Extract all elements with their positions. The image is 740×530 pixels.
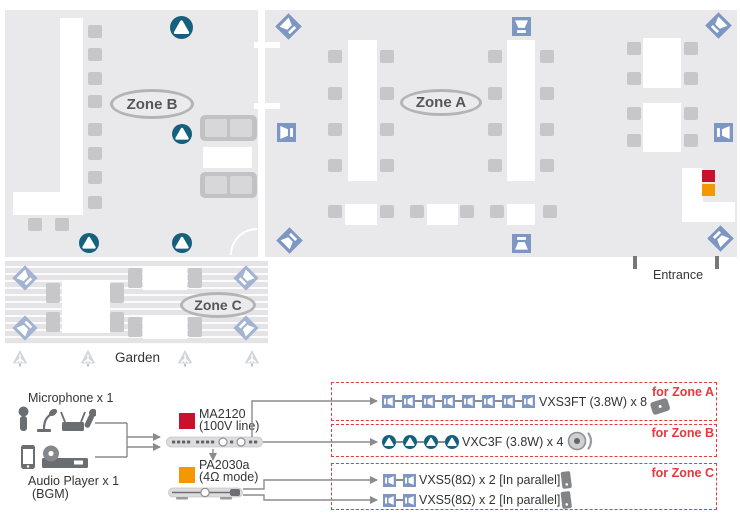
zone-a-speakers-label: VXS3FT (3.8W) x 8 <box>539 395 647 409</box>
wall-speaker-icon <box>277 123 296 142</box>
table <box>203 147 252 168</box>
connector-line <box>435 400 442 402</box>
vxs3ft-speaker-icon <box>422 395 435 408</box>
page: Zone B Zone A Zone C Garden Entrance Mic… <box>0 0 740 530</box>
chair <box>380 159 394 172</box>
chair <box>460 205 474 218</box>
chair <box>188 317 202 337</box>
chair <box>128 317 142 337</box>
connector-line <box>455 400 462 402</box>
table <box>345 204 377 225</box>
corner-speaker-icon <box>707 225 734 252</box>
connector-line <box>415 400 422 402</box>
table <box>643 38 681 88</box>
vxs3ft-speaker-icon <box>502 395 515 408</box>
ceiling-speaker-icon <box>172 233 192 253</box>
chair <box>410 205 424 218</box>
zone-b-label: Zone B <box>110 89 194 119</box>
garden-tree-icon <box>11 349 29 367</box>
for-zone-b-tag: for Zone B <box>638 426 714 440</box>
vxs5-product-image <box>558 490 574 510</box>
chair <box>540 50 554 63</box>
audio-player-sublabel: (BGM) <box>32 487 69 501</box>
vxc3f-speaker-icon <box>403 435 417 449</box>
audio-player-icons <box>20 444 92 470</box>
zone-c-speakers-label-2: VXS5(8Ω) x 2 [In parallel] <box>419 493 560 507</box>
zone-b-label-text: Zone B <box>127 96 178 113</box>
chair <box>46 283 60 303</box>
table <box>507 40 535 181</box>
chair <box>188 268 202 288</box>
chair <box>328 123 342 136</box>
vxs5-speaker-icon <box>403 474 416 487</box>
vxs3ft-speaker-icon <box>522 395 535 408</box>
vxs3ft-speaker-icon <box>402 395 415 408</box>
chair <box>684 107 698 120</box>
garden-tree-icon <box>79 349 97 367</box>
table <box>682 202 735 222</box>
doorway-cap <box>254 103 280 109</box>
entrance-label: Entrance <box>636 268 720 282</box>
chair <box>88 48 102 61</box>
chair <box>328 159 342 172</box>
vxc3f-product-image <box>567 431 594 451</box>
chair <box>540 159 554 172</box>
for-zone-c-tag: for Zone C <box>638 466 714 480</box>
chair <box>28 218 42 231</box>
pa2030a-location-marker <box>702 184 715 196</box>
table <box>427 204 458 225</box>
zone-c-speaker-chain-1 <box>383 473 416 487</box>
garden-label: Garden <box>115 350 160 365</box>
sofa-cushion <box>230 176 252 194</box>
ma2120-amplifier-image <box>166 436 263 448</box>
vxs5-product-image <box>558 470 574 490</box>
table <box>60 18 83 215</box>
vxs3ft-product-image <box>648 396 672 416</box>
zone-c-speaker-chain-2 <box>383 493 416 507</box>
outdoor-speaker-icon <box>12 315 37 340</box>
chair <box>490 205 504 218</box>
audio-player-label: Audio Player x 1 <box>28 474 119 488</box>
chair <box>328 87 342 100</box>
sofa <box>200 115 257 141</box>
pa2030a-mode: (4Ω mode) <box>199 470 258 484</box>
vxc3f-speaker-icon <box>382 435 396 449</box>
chair <box>88 123 102 136</box>
ceiling-speaker-icon <box>172 124 192 144</box>
zone-c-label: Zone C <box>180 292 256 318</box>
wall-speaker-icon <box>512 234 531 253</box>
table <box>507 204 535 225</box>
table <box>348 40 377 181</box>
chair <box>88 95 102 108</box>
chair <box>110 283 124 303</box>
vxs3ft-speaker-icon <box>462 395 475 408</box>
garden-tree-icon <box>176 349 194 367</box>
garden-tree-icon <box>243 349 261 367</box>
chair <box>627 42 641 55</box>
vxc3f-speaker-icon <box>445 435 459 449</box>
outdoor-speaker-icon <box>12 265 37 290</box>
zone-b-speakers-label: VXC3F (3.8W) x 4 <box>462 435 563 449</box>
chair <box>627 72 641 85</box>
table <box>643 103 681 152</box>
sofa-cushion <box>205 119 227 137</box>
vxs3ft-speaker-icon <box>382 395 395 408</box>
chair <box>55 218 69 231</box>
vxs5-speaker-icon <box>383 474 396 487</box>
chair <box>684 72 698 85</box>
corner-speaker-icon <box>275 13 302 40</box>
chair <box>110 312 124 332</box>
connector-line <box>438 441 445 443</box>
chair <box>88 147 102 160</box>
table <box>143 315 187 339</box>
table <box>62 280 110 333</box>
ma2120-color-key <box>179 413 195 429</box>
connector-line <box>396 441 403 443</box>
vxs3ft-speaker-icon <box>442 395 455 408</box>
chair <box>543 205 557 218</box>
chair <box>488 123 502 136</box>
outdoor-speaker-icon <box>233 315 258 340</box>
connector-line <box>515 400 522 402</box>
wall-speaker-icon <box>512 17 531 36</box>
connector-line <box>396 479 403 481</box>
microphone-label: Microphone x 1 <box>28 391 113 405</box>
ceiling-speaker-icon <box>79 233 99 253</box>
outdoor-speaker-icon <box>233 265 258 290</box>
vxc3f-speaker-icon <box>424 435 438 449</box>
sofa-cushion <box>205 176 227 194</box>
chair <box>128 268 142 288</box>
connector-line <box>475 400 482 402</box>
vxs3ft-speaker-icon <box>482 395 495 408</box>
pa2030a-amplifier-image <box>168 486 243 500</box>
doorway-cap <box>254 42 280 48</box>
chair <box>46 312 60 332</box>
chair <box>488 87 502 100</box>
chair <box>328 205 342 218</box>
connector-line <box>396 499 403 501</box>
corner-speaker-icon <box>276 227 303 254</box>
chair <box>380 87 394 100</box>
chair <box>88 25 102 38</box>
microphone-icons <box>16 405 96 433</box>
zone-a-label-text: Zone A <box>416 94 466 111</box>
sofa-cushion <box>230 119 252 137</box>
chair <box>380 205 394 218</box>
table <box>13 192 60 215</box>
pa2030a-color-key <box>179 467 195 483</box>
chair <box>88 171 102 184</box>
connector-line <box>395 400 402 402</box>
chair <box>627 107 641 120</box>
sofa <box>200 172 257 198</box>
chair <box>380 123 394 136</box>
ceiling-speaker-icon <box>170 16 193 39</box>
connector-line <box>495 400 502 402</box>
wall-speaker-icon <box>714 123 733 142</box>
vxs5-speaker-icon <box>403 494 416 507</box>
chair <box>88 72 102 85</box>
chair <box>540 123 554 136</box>
chair <box>684 134 698 147</box>
zone-c-label-text: Zone C <box>194 297 241 313</box>
chair <box>488 159 502 172</box>
zone-c-speakers-label-1: VXS5(8Ω) x 2 [In parallel] <box>419 473 560 487</box>
chair <box>540 87 554 100</box>
chair <box>88 196 102 209</box>
chair <box>684 42 698 55</box>
zone-a-speaker-chain <box>382 394 535 408</box>
ma2120-mode: (100V line) <box>199 419 259 433</box>
vxs5-speaker-icon <box>383 494 396 507</box>
ma2120-location-marker <box>702 170 715 182</box>
corner-speaker-icon <box>705 12 732 39</box>
chair <box>328 50 342 63</box>
chair <box>488 50 502 63</box>
zone-a-label: Zone A <box>400 89 482 116</box>
zone-b-speaker-chain <box>382 434 459 449</box>
chair <box>380 50 394 63</box>
table <box>143 266 187 290</box>
chair <box>627 134 641 147</box>
connector-line <box>417 441 424 443</box>
